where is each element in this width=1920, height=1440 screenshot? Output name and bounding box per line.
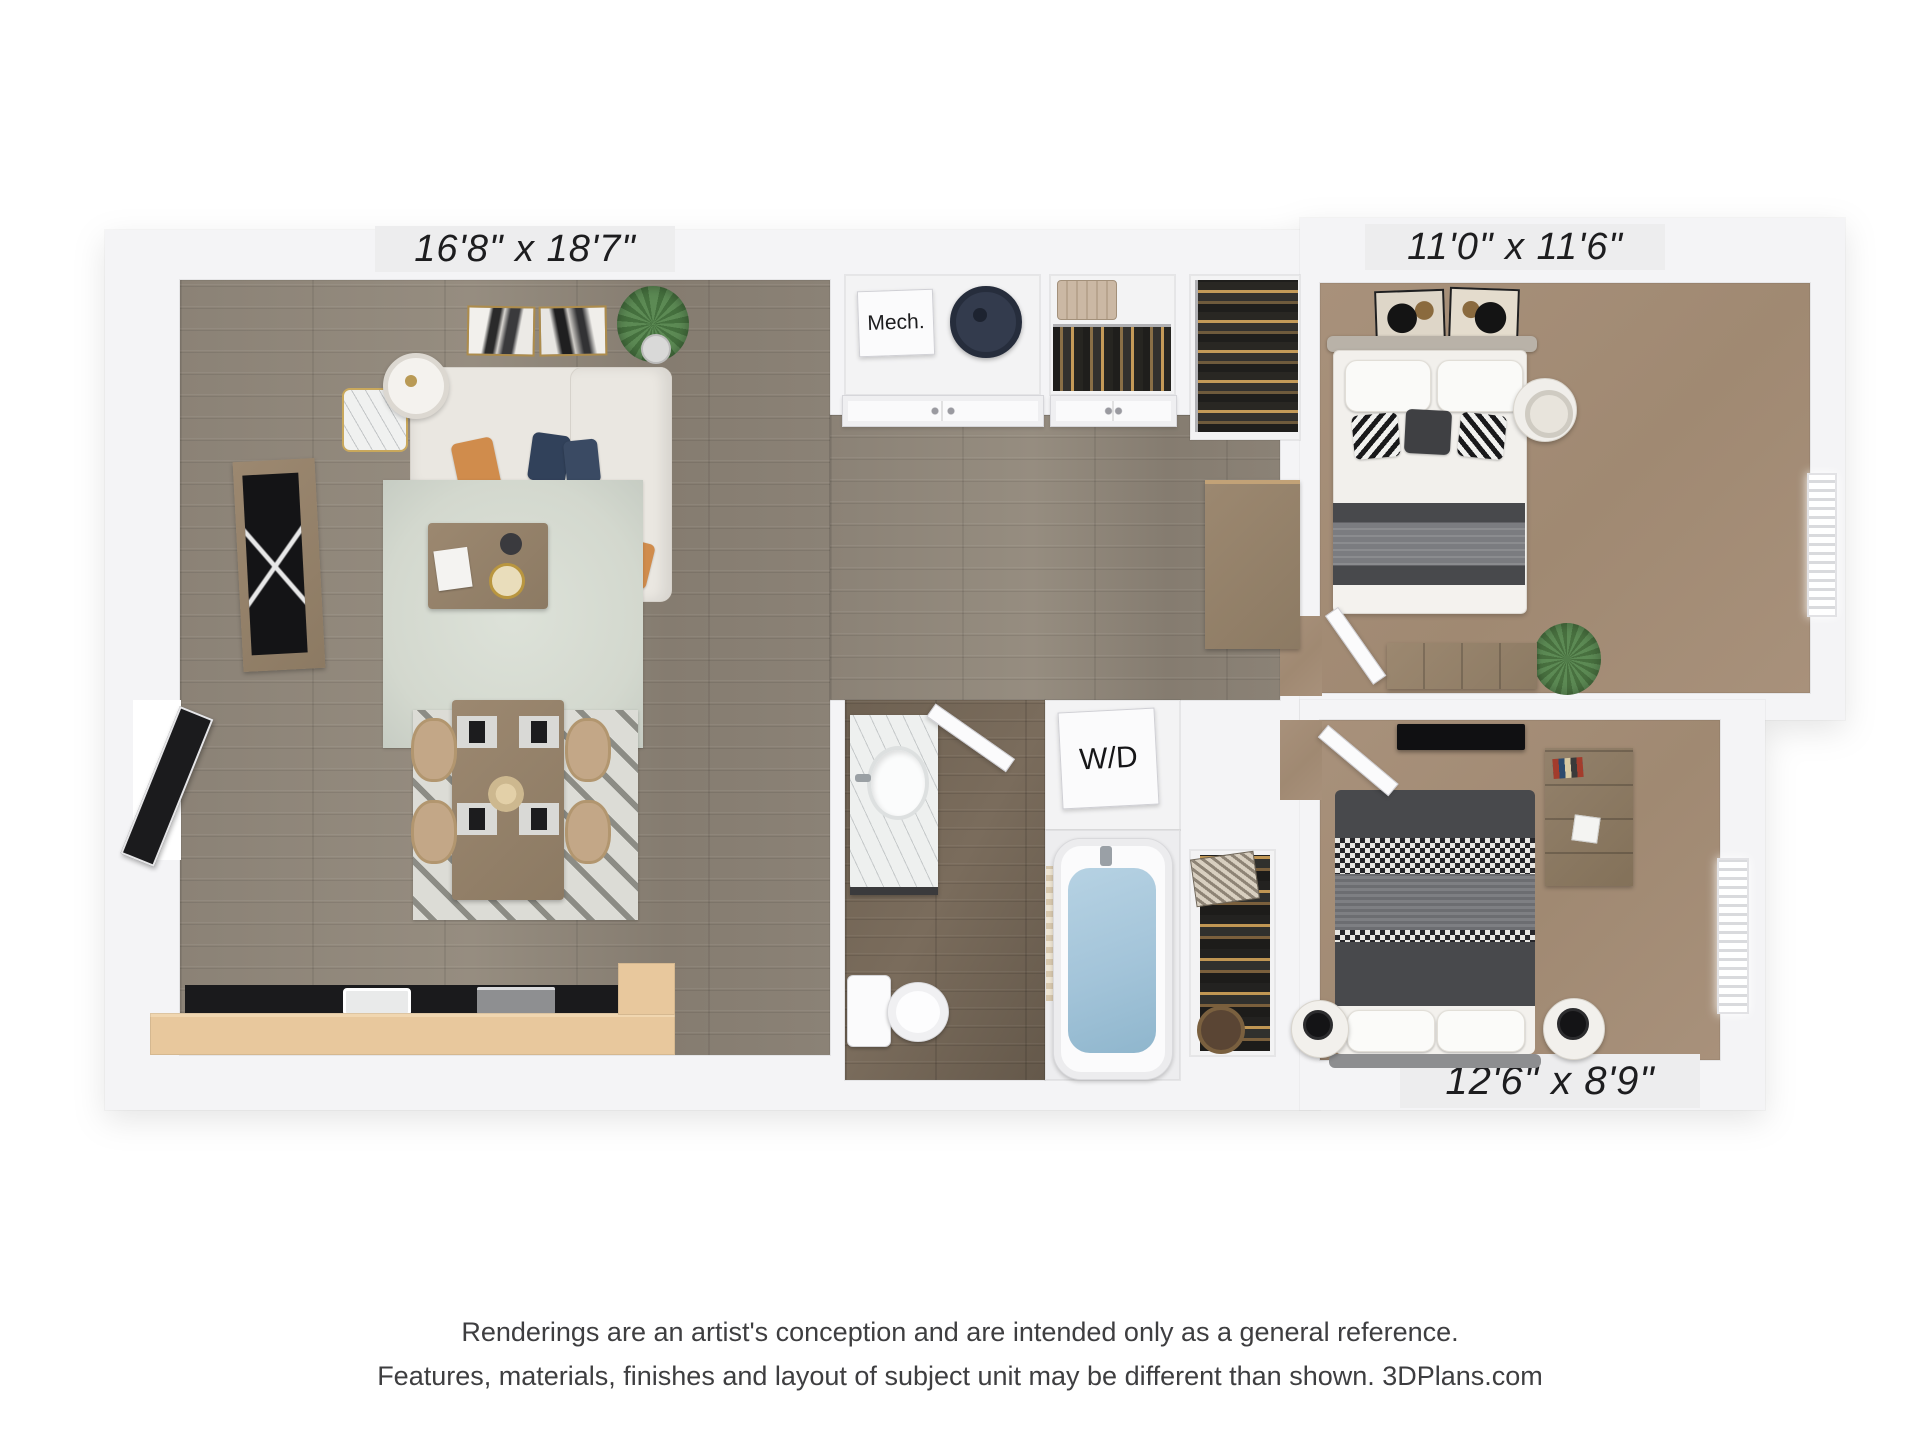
napkin: [531, 721, 547, 743]
placemat: [519, 716, 559, 748]
bed-pillow: [1437, 360, 1523, 412]
footer-disclaimer: Renderings are an artist's conception an…: [0, 1310, 1920, 1398]
kitchen-bar-return: [618, 963, 675, 1015]
napkin: [469, 721, 485, 743]
bedroom-2-dresser-books: [1552, 757, 1583, 779]
vanity-sink: [867, 746, 929, 820]
napkin: [469, 808, 485, 830]
dining-chair: [411, 800, 457, 864]
washer-dryer-box: W/D: [1058, 708, 1160, 810]
kitchen-bar-counter: [150, 1013, 675, 1055]
accent-pillow-chevron: [1351, 412, 1401, 460]
bedroom-2-door-gap: [1280, 720, 1322, 800]
kitchen-stove: [477, 987, 555, 1014]
washer-dryer-text: W/D: [1078, 740, 1138, 777]
vanity-faucet: [855, 774, 871, 782]
bedroom-2-lamp-right: [1557, 1008, 1589, 1040]
placemat: [457, 716, 497, 748]
bedroom-2-houndstooth-trim: [1335, 930, 1535, 942]
tv-screen: [242, 473, 307, 656]
bedroom-2-tv: [1397, 724, 1525, 750]
bedroom-2-headboard: [1329, 1054, 1541, 1068]
bed-pillow: [1347, 1010, 1435, 1052]
disclaimer-line-2: Features, materials, finishes and layout…: [0, 1354, 1920, 1398]
hall-closet-doors-left: [842, 395, 1044, 427]
bedroom-2-lamp-left: [1303, 1010, 1333, 1040]
bedroom-2-houndstooth-band: [1335, 838, 1535, 874]
bedroom-2-duvet-bottom: [1335, 942, 1535, 1006]
bedroom-1-dimension-text: 11'0" x 11'6": [1407, 226, 1623, 269]
bedroom-2-duvet-top: [1335, 790, 1535, 838]
accent-pillow-chevron: [1457, 412, 1507, 461]
kitchen-counter: [185, 985, 675, 1013]
toilet-bowl: [887, 982, 949, 1042]
bathtub-water: [1068, 868, 1156, 1053]
bedroom-2-dresser-card: [1571, 814, 1600, 843]
bedroom-2-knit-band: [1335, 874, 1535, 930]
disclaimer-line-1: Renderings are an artist's conception an…: [0, 1310, 1920, 1354]
hall-closet-doors-right: [1050, 395, 1177, 427]
closet-hanging-clothes: [1053, 324, 1171, 391]
placemat: [519, 803, 559, 835]
bed-pillow: [1345, 360, 1431, 412]
wall-art-bedroom-1: [1448, 287, 1520, 343]
walkin-closet-clothes: [1195, 280, 1298, 432]
floor-lamp-finial: [405, 375, 417, 387]
living-dimension-label: 16'8" x 18'7": [375, 226, 675, 272]
mech-label-box: Mech.: [857, 289, 935, 358]
napkin: [531, 808, 547, 830]
sofa-pillow-navy-2: [563, 438, 601, 485]
dining-chair: [411, 718, 457, 782]
coffee-table-magazine: [433, 547, 472, 591]
bedroom-1-sheet-fold: [1333, 585, 1525, 612]
dining-chair: [565, 718, 611, 782]
bedroom-2-window: [1717, 858, 1749, 1014]
coffee-table-vase: [500, 533, 522, 555]
living-dimension-text: 16'8" x 18'7": [414, 228, 635, 271]
kitchen-sink: [343, 988, 411, 1016]
accent-pillow-dark: [1404, 409, 1452, 455]
placemat: [457, 803, 497, 835]
dining-centerpiece: [488, 776, 524, 812]
wall-art-living-1: [467, 305, 536, 356]
wall-art-living-2: [539, 305, 608, 356]
bedroom-1-dimension-label: 11'0" x 11'6": [1365, 224, 1665, 270]
dining-chair: [565, 800, 611, 864]
bedroom-1-dresser: [1387, 643, 1537, 689]
bedroom-1-window: [1807, 473, 1837, 617]
hall-console-table: [1205, 480, 1300, 649]
bedroom-1-lamp: [1525, 390, 1573, 438]
bedroom-1-plant: [1533, 623, 1601, 695]
floorplan-canvas: 16'8" x 18'7" 11'0" x 11'6" 12'6" x 8'9": [105, 218, 1845, 1118]
bedroom-2-closet-box: [1190, 851, 1260, 907]
toilet-tank: [847, 975, 891, 1047]
coffee-table-tray: [489, 563, 525, 599]
water-heater: [950, 286, 1022, 358]
living-plant-pot: [641, 334, 671, 364]
bathtub-faucet: [1100, 846, 1112, 866]
bedroom-1-blanket-stripes: [1333, 523, 1525, 565]
water-heater-valve: [973, 308, 987, 322]
bedroom-2-closet-basket: [1197, 1006, 1245, 1054]
closet-suitcase: [1057, 280, 1117, 320]
bed-pillow: [1437, 1010, 1525, 1052]
floor-lamp: [383, 353, 449, 419]
mech-label-text: Mech.: [867, 310, 925, 336]
